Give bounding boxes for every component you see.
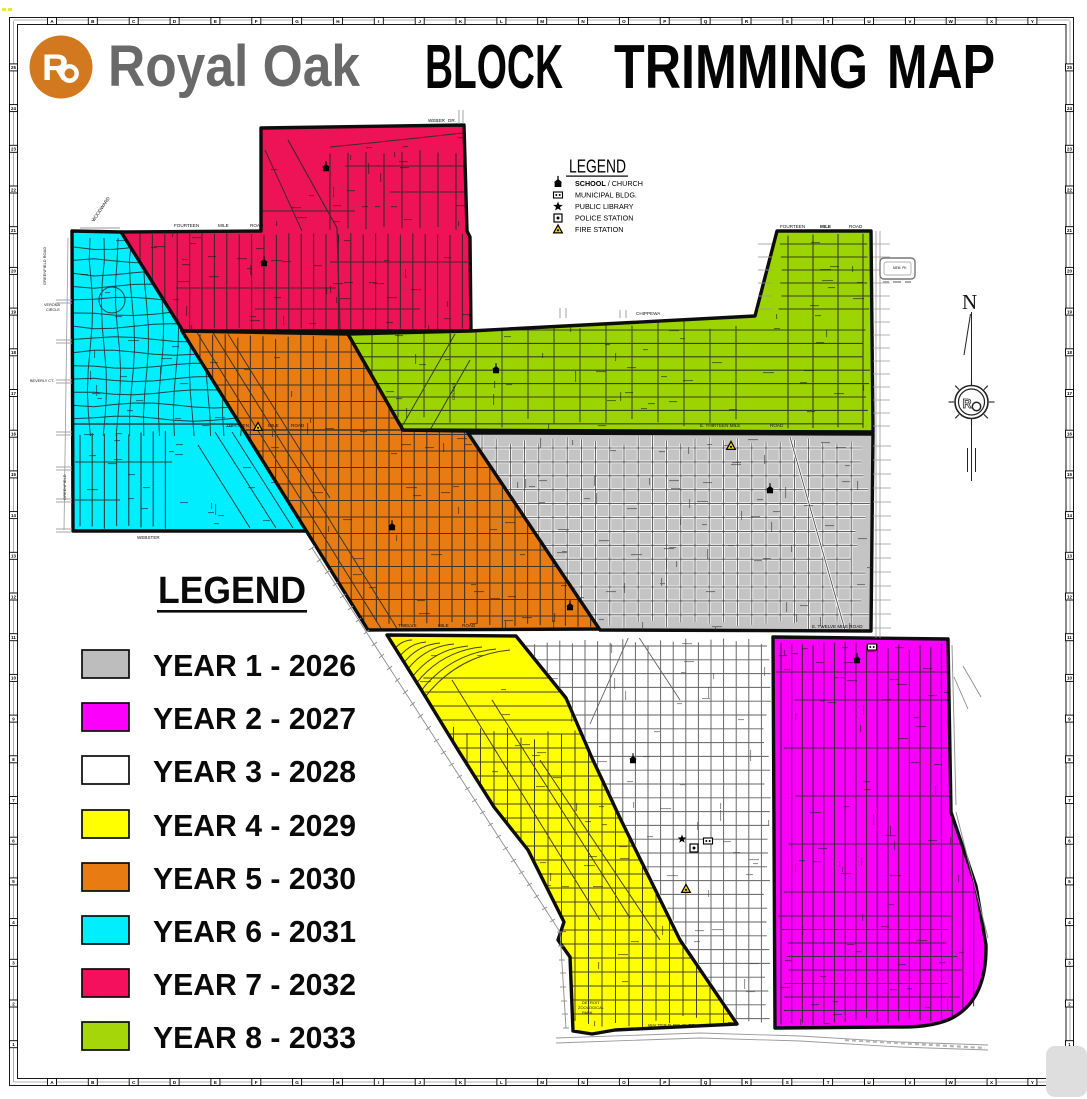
svg-text:19: 19 [1067,309,1072,314]
svg-text:CROOKS: CROOKS [451,382,456,400]
svg-text:21: 21 [11,228,16,233]
svg-text:25: 25 [1067,65,1072,70]
svg-text:WEBER: WEBER [428,118,446,123]
svg-text:BEVERLY CT.: BEVERLY CT. [30,379,54,383]
svg-text:F: F [255,19,258,24]
svg-text:W: W [949,1080,954,1085]
svg-text:I: I [378,19,379,24]
svg-text:24: 24 [11,106,16,111]
svg-text:24: 24 [1067,106,1072,111]
svg-text:S: S [786,1080,789,1085]
svg-text:DR.: DR. [448,118,456,123]
svg-text:P: P [663,19,666,24]
svg-text:MILE: MILE [218,223,229,228]
svg-text:20: 20 [11,269,16,274]
svg-text:21: 21 [1067,228,1072,233]
svg-text:ROAD: ROAD [849,224,863,229]
svg-text:22: 22 [11,187,16,192]
svg-text:12: 12 [11,594,16,599]
svg-text:I: I [378,1080,379,1085]
svg-text:20: 20 [1067,269,1072,274]
svg-text:YEAR 5 - 2030: YEAR 5 - 2030 [153,861,356,896]
svg-text:E: E [214,19,217,24]
svg-text:10: 10 [11,676,16,681]
svg-text:ROAD: ROAD [250,223,264,228]
svg-text:BLOCK: BLOCK [425,33,563,102]
svg-text:11: 11 [11,635,16,640]
svg-text:J: J [418,19,421,24]
svg-text:ROAD: ROAD [291,423,305,428]
svg-text:25: 25 [11,65,16,70]
svg-text:Q: Q [704,19,708,24]
svg-text:MUNICIPAL BLDG.: MUNICIPAL BLDG. [575,191,637,200]
svg-text:CIRCLE: CIRCLE [46,308,60,312]
svg-text:14: 14 [1067,513,1072,518]
svg-text:ROAD: ROAD [770,423,784,428]
svg-text:E: E [214,1080,217,1085]
svg-text:16: 16 [1067,432,1072,437]
svg-text:YEAR 8 - 2033: YEAR 8 - 2033 [153,1020,356,1055]
svg-text:MEM. PK: MEM. PK [893,266,907,270]
svg-text:FOURTEEN: FOURTEEN [780,224,805,229]
svg-text:19: 19 [11,309,16,314]
svg-text:WALTER P. REUTHER: WALTER P. REUTHER [648,1023,696,1028]
svg-text:YEAR 3 - 2028: YEAR 3 - 2028 [153,754,356,789]
svg-text:E. THIRTEEN MILE: E. THIRTEEN MILE [700,423,740,428]
svg-text:FWY.: FWY. [728,1021,739,1026]
svg-text:13: 13 [11,554,16,559]
svg-text:E. TWELVE MILE ROAD: E. TWELVE MILE ROAD [812,624,863,629]
svg-text:S: S [786,19,789,24]
svg-text:Y: Y [1031,1080,1034,1085]
svg-text:YEAR 6 - 2031: YEAR 6 - 2031 [153,914,356,949]
svg-text:CHIPPEWA: CHIPPEWA [636,311,661,316]
svg-text:22: 22 [1067,187,1072,192]
svg-text:THIRTEEN: THIRTEEN [226,423,249,428]
svg-text:G: G [295,1080,299,1085]
svg-text:L: L [500,1080,503,1085]
svg-text:W: W [949,19,954,24]
svg-text:FIRE STATION: FIRE STATION [575,225,623,234]
svg-text:R: R [963,397,972,411]
svg-text:15: 15 [1067,472,1072,477]
svg-text:23: 23 [1067,147,1072,152]
svg-text:MILE: MILE [438,623,449,628]
svg-text:10: 10 [1067,676,1072,681]
svg-text:YEAR 7 - 2032: YEAR 7 - 2032 [153,967,356,1002]
svg-text:15: 15 [11,472,16,477]
svg-text:FOURTEEN: FOURTEEN [174,223,199,228]
svg-text:18: 18 [11,350,16,355]
svg-text:GREENFIELD ROAD: GREENFIELD ROAD [42,247,47,285]
svg-text:M: M [540,19,544,24]
svg-text:16: 16 [11,432,16,437]
svg-text:18: 18 [1067,350,1072,355]
svg-text:WEBSTER: WEBSTER [137,535,160,540]
svg-text:12: 12 [1067,594,1072,599]
svg-text:P: P [663,1080,666,1085]
svg-text:17: 17 [1067,391,1072,396]
svg-text:TWELVE: TWELVE [398,623,417,628]
svg-text:LEGEND: LEGEND [569,157,626,177]
svg-text:G: G [295,19,299,24]
svg-text:T: T [827,1080,830,1085]
svg-text:Q: Q [704,1080,708,1085]
svg-text:11: 11 [1067,635,1072,640]
svg-text:Royal Oak: Royal Oak [108,34,361,99]
svg-text:PARK: PARK [582,1010,593,1015]
svg-text:GREENFIELD: GREENFIELD [62,474,67,500]
svg-text:YEAR 4 - 2029: YEAR 4 - 2029 [153,808,356,843]
svg-text:YEAR 2 - 2027: YEAR 2 - 2027 [153,701,356,736]
svg-text:O: O [622,1080,626,1085]
svg-text:TRIMMING: TRIMMING [614,33,868,102]
svg-text:J: J [418,1080,421,1085]
svg-text:F: F [255,1080,258,1085]
svg-text:MILE: MILE [268,423,279,428]
svg-text:PUBLIC LIBRARY: PUBLIC LIBRARY [575,202,634,211]
svg-text:MILE: MILE [820,224,831,229]
svg-text:Y: Y [1031,19,1034,24]
svg-text:13: 13 [1067,554,1072,559]
svg-text:14: 14 [11,513,16,518]
svg-text:N: N [962,290,977,314]
svg-text:VERONA: VERONA [44,303,61,307]
svg-text:O: O [622,19,626,24]
svg-text:MAP: MAP [887,33,995,102]
svg-text:M: M [540,1080,544,1085]
svg-text:SCHOOL / CHURCH: SCHOOL / CHURCH [575,179,643,188]
svg-text:ROAD: ROAD [462,623,476,628]
svg-text:POLICE STATION: POLICE STATION [575,214,633,223]
svg-text:LEGEND: LEGEND [158,570,306,612]
svg-text:T: T [827,19,830,24]
svg-text:17: 17 [11,391,16,396]
svg-text:YEAR 1 - 2026: YEAR 1 - 2026 [153,648,356,683]
svg-text:23: 23 [11,147,16,152]
svg-text:L: L [500,19,503,24]
